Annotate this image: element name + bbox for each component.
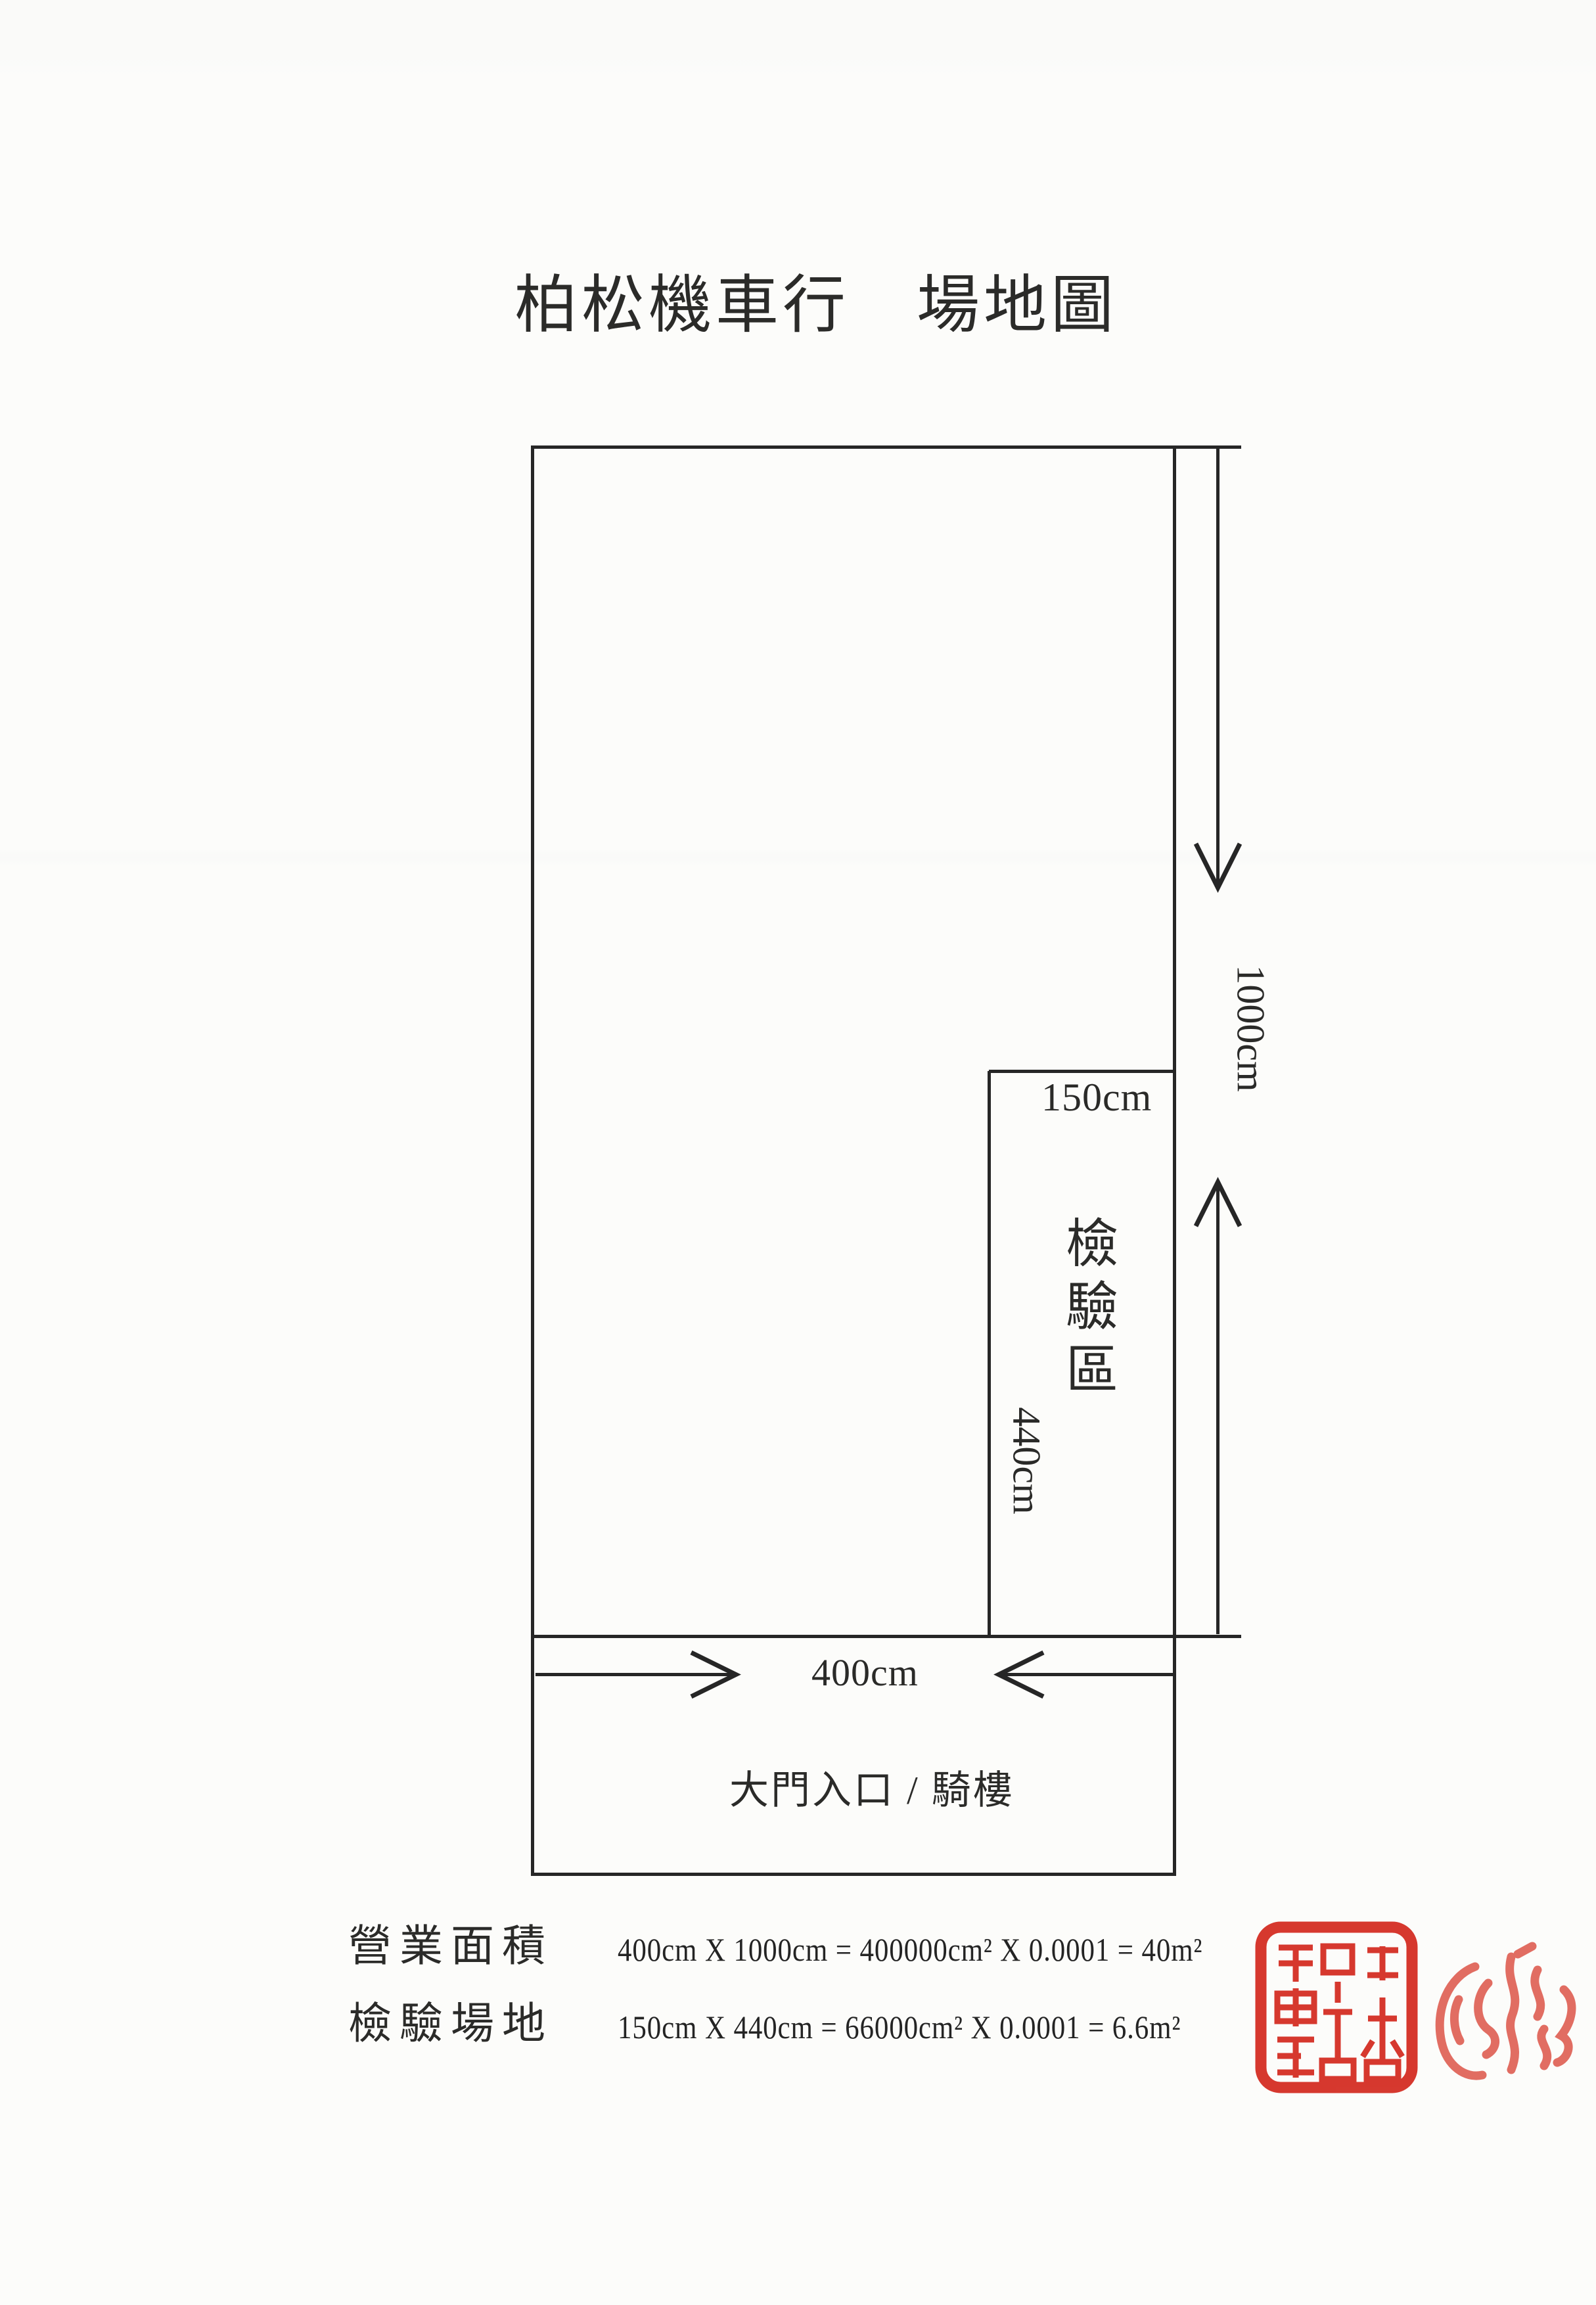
- inspection-site-calculation-row: 檢驗場地 150cm X 440cm = 66000cm² X 0.0001 =…: [348, 1988, 1298, 2051]
- business-area-calculation-row: 營業面積 400cm X 1000cm = 400000cm² X 0.0001…: [348, 1911, 1298, 1974]
- dim-400cm-right-arrow-icon: [536, 1653, 736, 1697]
- inspection-site-formula: 150cm X 440cm = 66000cm² X 0.0001 = 6.6m…: [618, 2008, 1181, 2046]
- inspection-site-label: 檢驗場地: [348, 1988, 553, 2051]
- height-dimension-label: 1000cm: [1228, 965, 1273, 1091]
- dim-400cm-left-arrow-icon: [999, 1653, 1175, 1697]
- area-calculations: 營業面積 400cm X 1000cm = 400000cm² X 0.0001…: [348, 1911, 1298, 2066]
- width-dimension-label: 400cm: [811, 1651, 919, 1695]
- signature-seal-icon: [1413, 1937, 1591, 2100]
- inspection-height-label: 440cm: [1004, 1407, 1049, 1514]
- entrance-label: 大門入口 / 騎樓: [729, 1758, 1015, 1815]
- dim-1000cm-down-arrow-icon: [1196, 449, 1240, 888]
- scanned-site-plan-document: 柏松機車行 場地圖: [0, 0, 1596, 2305]
- business-area-label: 營業面積: [348, 1911, 553, 1974]
- inspection-area-label: 檢驗區: [1049, 1216, 1125, 1405]
- dim-440cm-up-arrow-icon: [1196, 1182, 1240, 1634]
- company-seal-icon: [1254, 1920, 1419, 2095]
- inspection-width-label: 150cm: [1041, 1075, 1152, 1120]
- business-area-formula: 400cm X 1000cm = 400000cm² X 0.0001 = 40…: [618, 1930, 1202, 1969]
